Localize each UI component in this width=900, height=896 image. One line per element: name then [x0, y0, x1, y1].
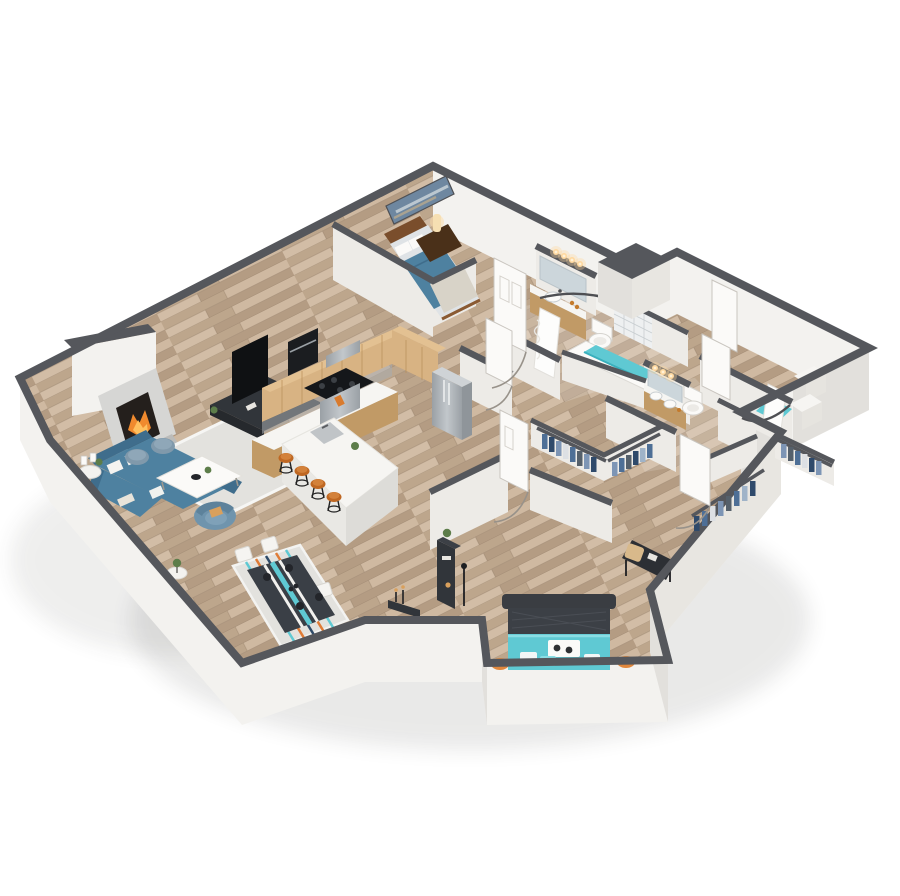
- island-plant: [351, 442, 359, 450]
- console-decor: [445, 582, 450, 587]
- decor-bowl: [191, 474, 201, 480]
- console-plant: [443, 529, 451, 537]
- bottle: [570, 301, 574, 305]
- headboard: [502, 594, 616, 609]
- floor-plan-image: 3D isometric floor plan of a two-bedroom…: [0, 0, 900, 896]
- table-plant: [205, 467, 212, 474]
- light-bulb: [665, 370, 677, 382]
- bed-tray: [548, 640, 580, 657]
- faucet: [558, 289, 562, 293]
- master-door: [500, 410, 528, 492]
- bottle: [575, 305, 579, 309]
- bottle: [677, 408, 681, 412]
- console-books: [442, 556, 451, 560]
- light-bulb: [574, 258, 586, 270]
- picture-frame: [81, 456, 87, 465]
- table-lamp: [433, 214, 441, 232]
- floor-plan-canvas: [0, 0, 900, 896]
- sink: [664, 400, 676, 408]
- sink: [650, 392, 662, 400]
- picture-frame: [90, 453, 96, 462]
